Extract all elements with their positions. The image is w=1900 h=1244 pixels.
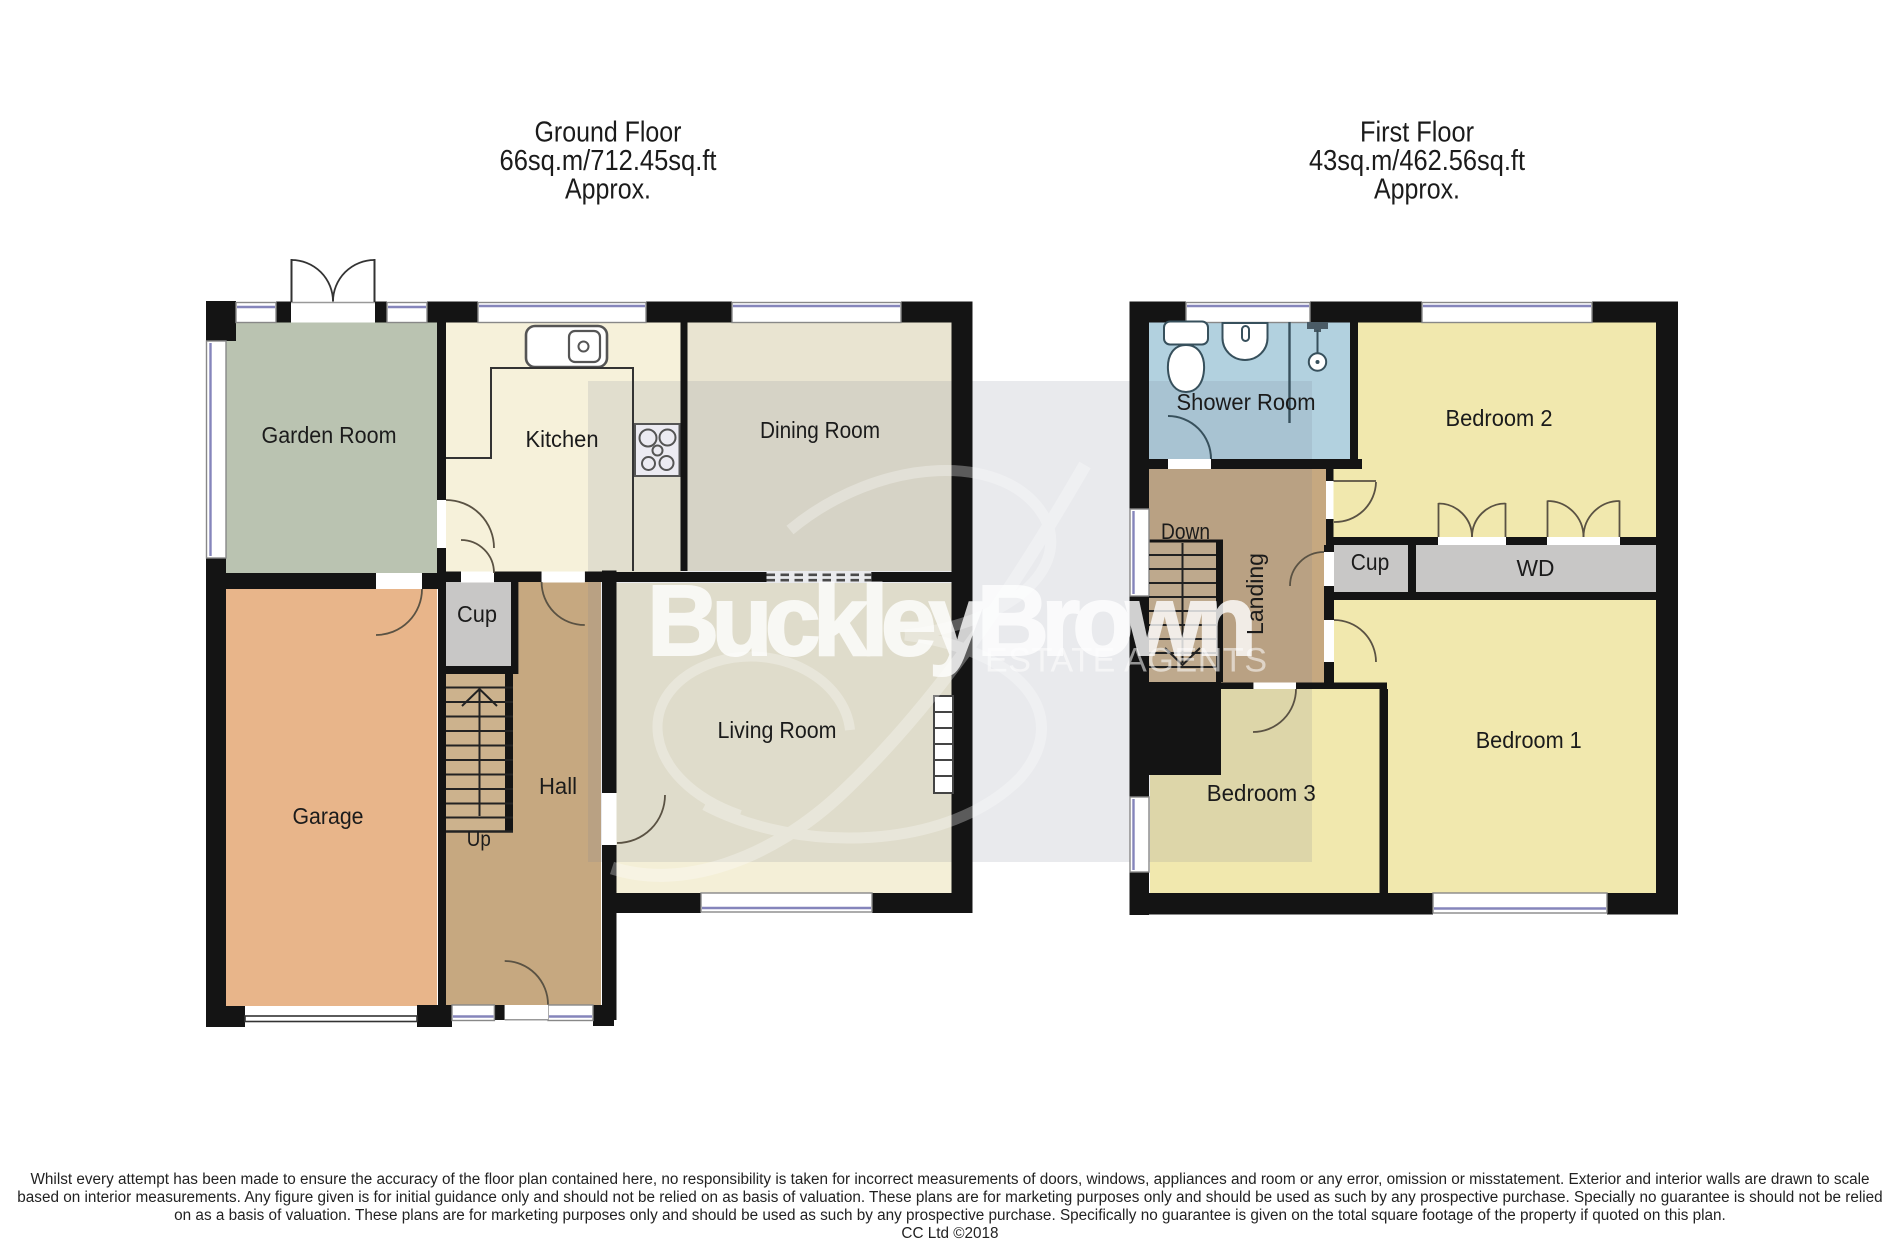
svg-text:CC Ltd ©2018: CC Ltd ©2018 — [901, 1225, 998, 1242]
svg-text:Kitchen: Kitchen — [526, 426, 599, 452]
svg-text:First Floor: First Floor — [1360, 117, 1474, 149]
svg-text:43sq.m/462.56sq.ft: 43sq.m/462.56sq.ft — [1309, 145, 1525, 177]
svg-text:Whilst every attempt has been: Whilst every attempt has been made to en… — [30, 1171, 1869, 1188]
svg-text:Living Room: Living Room — [718, 717, 837, 743]
svg-text:Dining Room: Dining Room — [760, 417, 880, 443]
svg-text:ESTATE AGENTS: ESTATE AGENTS — [985, 642, 1269, 680]
svg-text:Garage: Garage — [293, 803, 364, 829]
svg-text:based on interior measurements: based on interior measurements. Any figu… — [17, 1189, 1882, 1206]
svg-text:Hall: Hall — [539, 773, 577, 799]
svg-text:Bedroom 2: Bedroom 2 — [1446, 405, 1553, 431]
svg-text:Up: Up — [467, 828, 491, 851]
svg-text:Cup: Cup — [1351, 549, 1390, 575]
svg-text:Approx.: Approx. — [565, 174, 651, 206]
svg-text:Approx.: Approx. — [1374, 174, 1460, 206]
svg-text:WD: WD — [1517, 555, 1555, 581]
svg-text:on as a basis of valuation. Th: on as a basis of valuation. These plans … — [174, 1207, 1726, 1224]
svg-text:Ground Floor: Ground Floor — [535, 117, 682, 149]
svg-text:Bedroom 1: Bedroom 1 — [1476, 727, 1582, 753]
svg-text:Shower Room: Shower Room — [1177, 389, 1316, 415]
svg-text:66sq.m/712.45sq.ft: 66sq.m/712.45sq.ft — [500, 145, 717, 177]
svg-text:Landing: Landing — [1242, 553, 1268, 635]
svg-text:Cup: Cup — [457, 601, 497, 627]
svg-text:Bedroom 3: Bedroom 3 — [1207, 780, 1316, 806]
svg-text:Garden Room: Garden Room — [262, 422, 397, 448]
svg-text:Down: Down — [1161, 519, 1210, 544]
